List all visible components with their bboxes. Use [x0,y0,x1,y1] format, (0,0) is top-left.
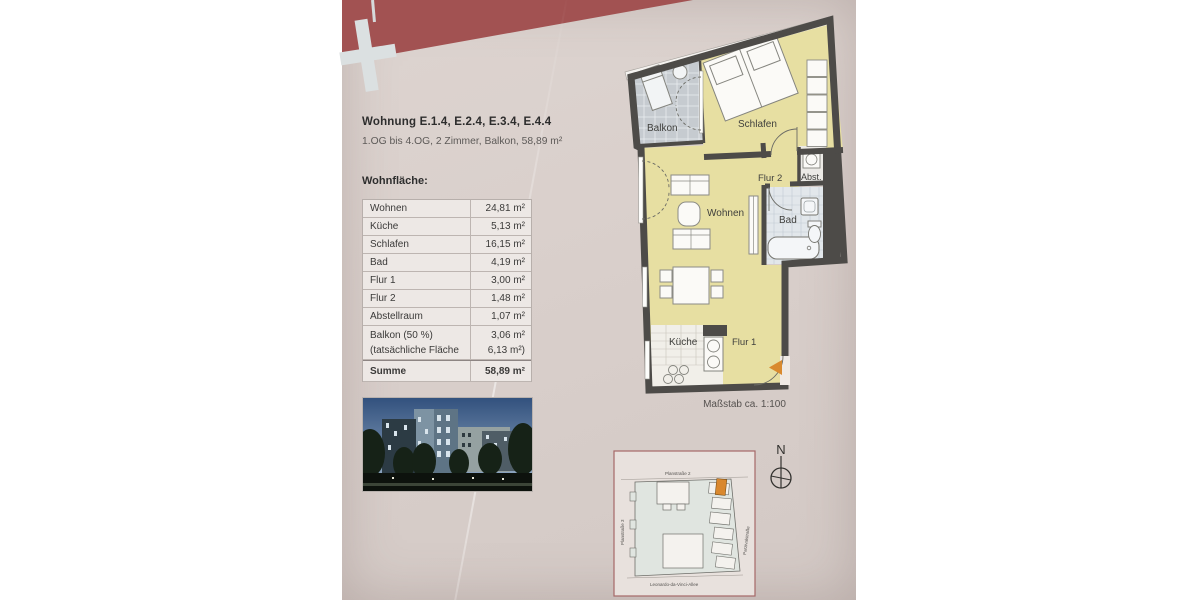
row-label-line2: (tatsächliche Fläche [370,343,470,358]
row-label: Schlafen [363,236,471,253]
row-label: Balkon (50 %) (tatsächliche Fläche [363,326,471,359]
row-label: Summe [363,361,471,381]
row-value: 16,15 m² [471,236,531,253]
table-row-sum: Summe 58,89 m² [363,360,531,382]
table-row: Flur 2 1,48 m² [363,290,531,308]
table-row: Flur 1 3,00 m² [363,272,531,290]
crop-mark-cross [334,9,416,99]
apartment-title: Wohnung E.1.4, E.2.4, E.3.4, E.4.4 [362,116,551,128]
row-value: 5,13 m² [471,218,531,235]
street-label-left: Planstraße 3 [620,519,625,545]
row-label: Abstellraum [363,308,471,325]
site-plan: Planstraße 2 Planstraße 3 Parzivalstraße… [613,450,756,597]
room-label-schlafen: Schlafen [738,119,777,130]
row-value: 3,06 m² 6,13 m²) [471,326,531,359]
brochure-page: Wohnung E.1.4, E.2.4, E.3.4, E.4.4 1.OG … [342,0,856,600]
building-photo [362,397,533,492]
room-label-flur1: Flur 1 [732,337,756,348]
row-value: 24,81 m² [471,200,531,217]
row-label: Bad [363,254,471,271]
row-value: 1,48 m² [471,290,531,307]
table-row: Bad 4,19 m² [363,254,531,272]
area-heading: Wohnfläche: [362,175,428,187]
row-value-line2: 6,13 m²) [471,343,525,358]
row-label: Wohnen [363,200,471,217]
floor-plan: Balkon Schlafen Flur 2 Abst. Wohnen Bad … [611,15,856,415]
table-row: Schlafen 16,15 m² [363,236,531,254]
apartment-subtitle: 1.OG bis 4.OG, 2 Zimmer, Balkon, 58,89 m… [362,136,562,147]
row-value: 1,07 m² [471,308,531,325]
row-value: 4,19 m² [471,254,531,271]
screenshot-stage: Wohnung E.1.4, E.2.4, E.3.4, E.4.4 1.OG … [0,0,1200,600]
row-label: Flur 1 [363,272,471,289]
row-value: 3,00 m² [471,272,531,289]
street-label-top: Planstraße 2 [665,471,691,476]
table-row: Küche 5,13 m² [363,218,531,236]
table-row: Abstellraum 1,07 m² [363,308,531,326]
scale-note: Maßstab ca. 1:100 [642,399,847,410]
north-compass: N [762,441,804,496]
row-label: Flur 2 [363,290,471,307]
highlighted-building [715,479,727,496]
room-label-bad: Bad [779,215,797,226]
table-row: Balkon (50 %) (tatsächliche Fläche 3,06 … [363,326,531,360]
room-label-kueche: Küche [669,337,698,348]
row-value: 58,89 m² [471,361,531,381]
room-label-flur2: Flur 2 [758,173,782,184]
room-label-balkon: Balkon [647,123,678,134]
row-label: Küche [363,218,471,235]
table-row: Wohnen 24,81 m² [363,200,531,218]
street-label-bottom: Leonardo-da-Vinci-Allee [650,582,699,587]
row-label-line1: Balkon (50 %) [370,328,470,343]
north-label: N [776,442,785,457]
area-table: Wohnen 24,81 m² Küche 5,13 m² Schlafen 1… [362,199,532,382]
room-label-wohnen: Wohnen [707,208,744,219]
room-label-abstellraum: Abst. [801,172,822,182]
row-value-line1: 3,06 m² [471,328,525,343]
